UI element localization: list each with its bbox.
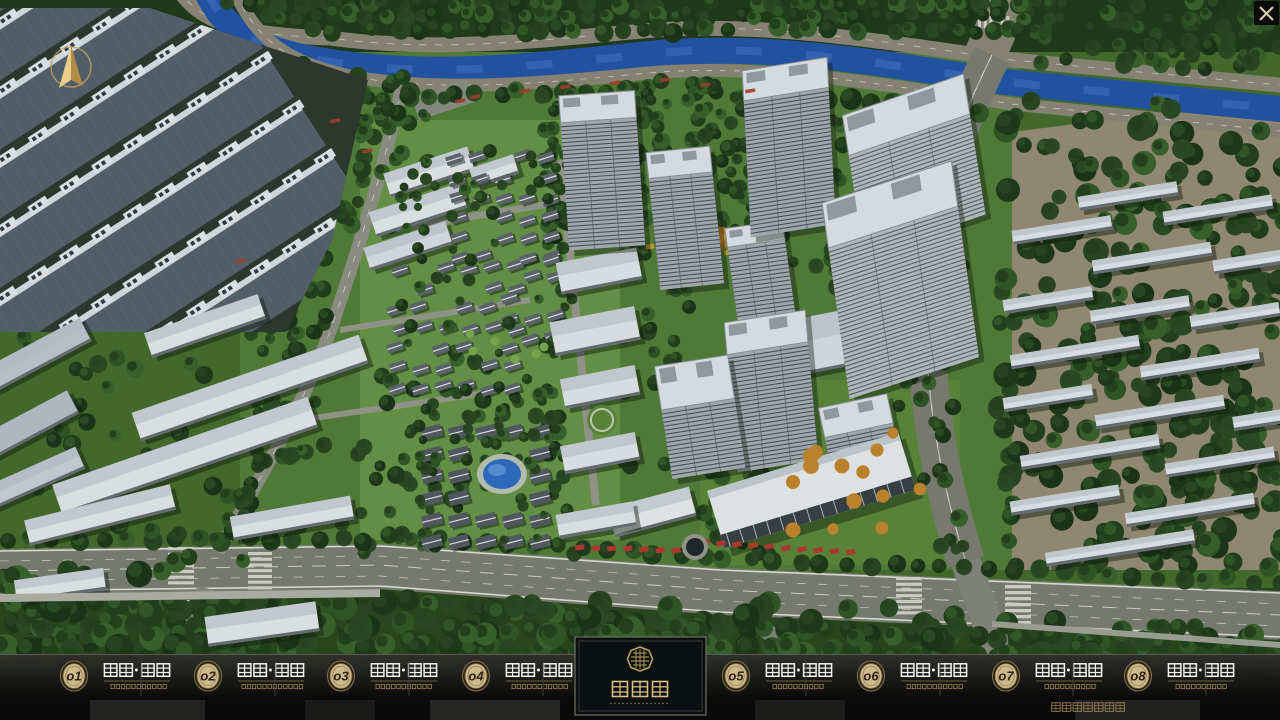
svg-text:o8: o8 bbox=[1130, 669, 1146, 684]
svg-text:o6: o6 bbox=[863, 669, 879, 684]
svg-text:o4: o4 bbox=[468, 669, 484, 684]
svg-text:o1: o1 bbox=[66, 669, 81, 684]
svg-text:o7: o7 bbox=[998, 669, 1014, 684]
svg-text:o2: o2 bbox=[200, 669, 216, 684]
svg-text:o3: o3 bbox=[333, 669, 349, 684]
svg-text:o5: o5 bbox=[728, 669, 744, 684]
